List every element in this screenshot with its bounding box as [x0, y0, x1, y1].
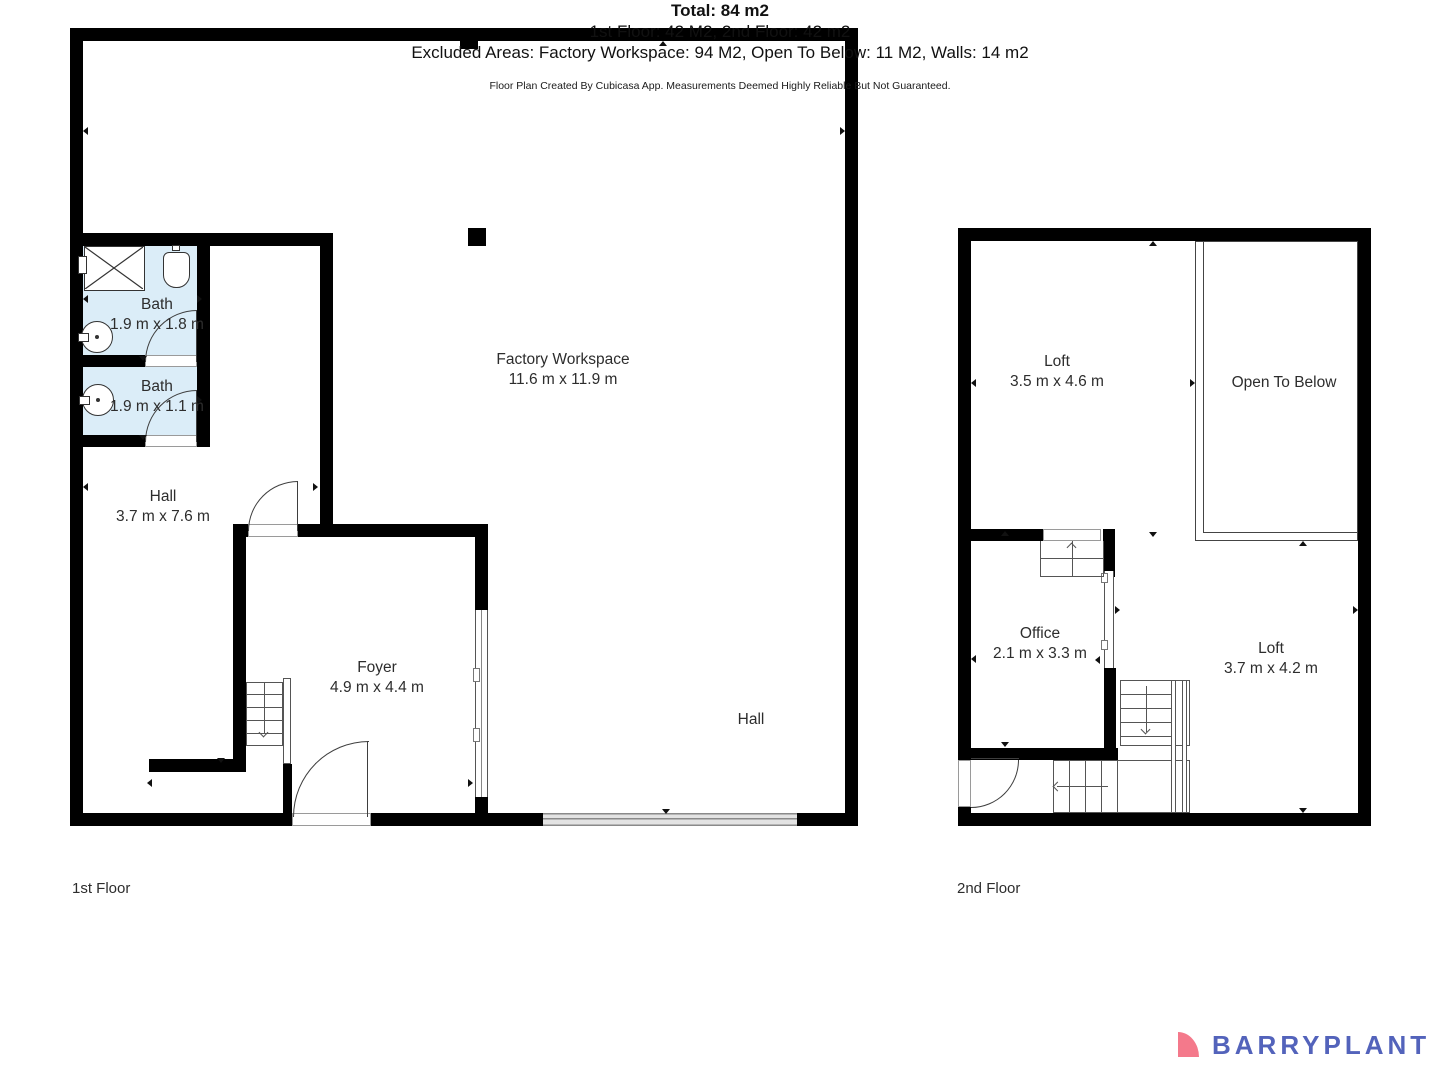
- wall-marker: [1353, 606, 1358, 614]
- sink-drain: [96, 398, 100, 402]
- room-dims: 3.7 m x 4.2 m: [1224, 659, 1318, 679]
- stair-railing: [283, 678, 291, 764]
- wall-marker: [139, 435, 147, 440]
- floor2-entry-door-leaf: [971, 758, 1019, 759]
- floorplan-1st-floor: Factory Workspace 11.6 m x 11.9 m Bath 1…: [70, 28, 858, 826]
- stair-tread: [1120, 736, 1172, 737]
- hall-door-arc: [248, 481, 298, 531]
- foyer-right-wall-upper: [475, 537, 488, 610]
- room-label-loft-top: Loft 3.5 m x 4.6 m: [1010, 352, 1104, 392]
- exterior-wall-top: [958, 228, 1371, 241]
- wall-marker: [1095, 656, 1100, 664]
- floorplan-page: Factory Workspace 11.6 m x 11.9 m Bath 1…: [0, 0, 1440, 1080]
- room-name: Bath: [110, 377, 204, 397]
- room-label-office: Office 2.1 m x 3.3 m: [993, 624, 1087, 664]
- room-dims: 11.6 m x 11.9 m: [496, 370, 629, 390]
- wall-marker: [1115, 606, 1120, 614]
- wall-marker: [971, 379, 976, 387]
- area-summary: Total: 84 m2 1st Floor: 42 M2, 2nd Floor…: [0, 0, 1440, 93]
- room-dims: 3.7 m x 7.6 m: [116, 507, 210, 527]
- room-label-bath2: Bath 1.9 m x 1.1 m: [110, 377, 204, 417]
- office-window-sash-tick: [1101, 640, 1108, 650]
- office-door-sill: [1043, 529, 1101, 541]
- room-name: Open To Below: [1232, 373, 1337, 393]
- column-freestanding: [468, 228, 486, 246]
- exterior-wall-bottom: [958, 813, 1371, 826]
- wall-marker: [139, 356, 147, 361]
- room-label-factory: Factory Workspace 11.6 m x 11.9 m: [496, 350, 629, 390]
- wall-marker: [1149, 241, 1157, 246]
- wall-marker: [147, 779, 152, 787]
- stair-side-wall: [283, 764, 292, 813]
- entry-door-leaf: [367, 741, 368, 817]
- foyer-right-wall-lower: [475, 797, 488, 813]
- sink-tap-icon: [79, 396, 90, 405]
- exterior-wall-right: [1358, 228, 1371, 826]
- stair-direction-shaft: [264, 682, 265, 734]
- sliding-door: [543, 813, 797, 826]
- wall-marker: [1149, 532, 1157, 537]
- foyer-window-sash-tick: [473, 728, 480, 742]
- room-name: Bath: [110, 295, 204, 315]
- room-dims: 2.1 m x 3.3 m: [993, 644, 1087, 664]
- office-corner-wall: [1103, 529, 1115, 577]
- floor1-caption: 1st Floor: [72, 880, 130, 897]
- stair-railing: [1182, 680, 1187, 813]
- stair-railing: [1171, 680, 1176, 813]
- office-window: [1104, 571, 1114, 668]
- wall-marker: [468, 779, 473, 787]
- floor2-entry-door-arc: [971, 760, 1019, 808]
- hall-stub-wall: [149, 759, 246, 772]
- wall-marker: [313, 483, 318, 491]
- room-dims: 3.5 m x 4.6 m: [1010, 372, 1104, 392]
- bath-top-wall: [83, 233, 333, 246]
- stair-tread: [1117, 760, 1118, 813]
- foyer-top-wall-right: [298, 524, 488, 537]
- wall-marker: [1299, 541, 1307, 546]
- foyer-window-glass-line: [481, 610, 482, 797]
- room-dims: 1.9 m x 1.1 m: [110, 397, 204, 417]
- floorplan-2nd-floor: Loft 3.5 m x 4.6 m Open To Below Office …: [958, 228, 1371, 826]
- room-label-foyer: Foyer 4.9 m x 4.4 m: [330, 658, 424, 698]
- wall-marker: [83, 127, 88, 135]
- room-label-loft-bottom: Loft 3.7 m x 4.2 m: [1224, 639, 1318, 679]
- foyer-left-wall: [233, 524, 246, 772]
- room-name: Loft: [1010, 352, 1104, 372]
- disclaimer-text: Floor Plan Created By Cubicasa App. Meas…: [0, 80, 1440, 93]
- bath-divider-wall: [83, 355, 145, 367]
- entry-door-arc: [293, 741, 369, 817]
- exterior-wall-right: [845, 28, 858, 826]
- wall-marker: [1299, 808, 1307, 813]
- excluded-areas-text: Excluded Areas: Factory Workspace: 94 M2…: [0, 42, 1440, 63]
- wall-marker: [840, 127, 845, 135]
- room-label-open-to-below: Open To Below: [1232, 373, 1337, 393]
- room-name: Hall: [738, 710, 765, 730]
- wall-marker: [83, 483, 88, 491]
- wall-marker: [662, 809, 670, 814]
- barryplant-logo-text: BARRYPLANT: [1212, 1030, 1430, 1061]
- toilet-icon: [163, 252, 190, 288]
- total-area-text: Total: 84 m2: [0, 0, 1440, 21]
- wall-marker: [1001, 531, 1009, 536]
- room-label-hall: Hall 3.7 m x 7.6 m: [116, 487, 210, 527]
- foyer-window-sash-tick: [473, 668, 480, 682]
- room-label-hall-right: Hall: [738, 710, 765, 730]
- room-dims: 1.9 m x 1.8 m: [110, 315, 204, 335]
- exterior-wall-left: [70, 28, 83, 826]
- office-right-wall: [1104, 668, 1116, 757]
- stair-direction-shaft: [1057, 786, 1108, 787]
- wall-marker: [1190, 379, 1195, 387]
- room-dims: 4.9 m x 4.4 m: [330, 678, 424, 698]
- sink-drain: [95, 335, 99, 339]
- sink-tap-icon: [78, 333, 89, 342]
- room-name: Hall: [116, 487, 210, 507]
- hall-door-leaf: [297, 481, 298, 531]
- exterior-wall-left: [958, 228, 971, 826]
- wall-marker: [1001, 742, 1009, 747]
- room-name: Office: [993, 624, 1087, 644]
- room-name: Loft: [1224, 639, 1318, 659]
- bath-bottom-wall: [83, 435, 145, 447]
- floor2-entry-sill: [958, 760, 971, 807]
- wall-marker: [83, 295, 88, 303]
- floor-areas-text: 1st Floor: 42 M2, 2nd Floor: 42 m2: [0, 21, 1440, 42]
- shower-icon: [84, 246, 145, 291]
- bath-hall-vertical-wall: [320, 233, 333, 537]
- wall-marker: [217, 758, 225, 763]
- shower-valve-icon: [78, 256, 87, 274]
- toilet-tank-icon: [172, 245, 180, 251]
- room-name: Factory Workspace: [496, 350, 629, 370]
- wall-marker: [971, 655, 976, 663]
- room-name: Foyer: [330, 658, 424, 678]
- floor2-caption: 2nd Floor: [957, 880, 1020, 897]
- barryplant-logo-icon: [1178, 1032, 1199, 1057]
- room-label-bath1: Bath 1.9 m x 1.8 m: [110, 295, 204, 335]
